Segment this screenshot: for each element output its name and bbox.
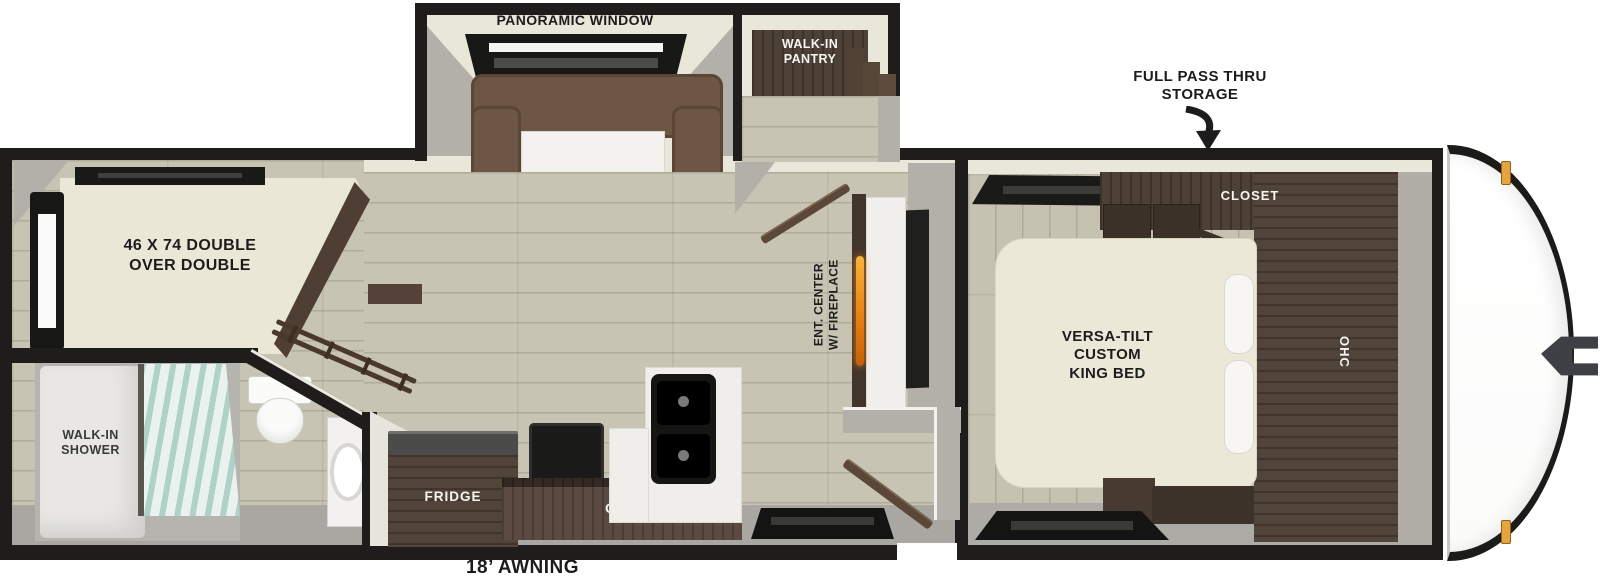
- panoramic-window-label: PANORAMIC WINDOW: [450, 12, 700, 29]
- bed-foot-bench: [1152, 486, 1254, 524]
- pantry-floor: [742, 96, 888, 162]
- bunkroom-side-window: [30, 192, 64, 350]
- ent-center-cabinet: [866, 197, 906, 423]
- storage-arrow-icon: [1178, 106, 1230, 154]
- window-slat-dark: [494, 58, 658, 69]
- panoramic-window: [465, 34, 687, 78]
- closet-label: CLOSET: [1198, 188, 1302, 204]
- pantry-label: WALK-IN PANTRY: [750, 37, 870, 68]
- king-bed-label: VERSA-TILT CUSTOM KING BED: [1015, 328, 1200, 383]
- walk-in-shower-label: WALK-IN SHOWER: [38, 428, 143, 459]
- washer-door: [330, 443, 366, 501]
- toilet-bowl: [256, 398, 304, 444]
- entry-step-wall-side: [934, 407, 960, 520]
- stove: [529, 423, 604, 482]
- faucet-knob: [678, 450, 689, 461]
- awning-label: 18’ AWNING: [440, 556, 605, 579]
- bedroom-bottom-window: [971, 511, 1169, 540]
- pantry-side-wall: [878, 96, 900, 162]
- fridge-top: [388, 431, 518, 458]
- fireplace-flame: [856, 256, 864, 366]
- bunk-bed-label: 46 X 74 DOUBLE OVER DOUBLE: [85, 236, 295, 275]
- pantry-step-3: [879, 74, 896, 96]
- bunkroom-top-window: [75, 167, 265, 185]
- pass-thru-storage-label: FULL PASS THRU STORAGE: [1095, 68, 1305, 105]
- fridge-label: FRIDGE: [388, 489, 518, 505]
- pillow: [1224, 360, 1254, 454]
- floorplan-canvas: PANORAMIC WINDOW WALK-IN PANTRY 46 X 74 …: [0, 0, 1600, 581]
- entry-door-opening: [897, 543, 957, 560]
- bunk-step: [368, 284, 422, 304]
- bathroom-wall-top: [6, 348, 258, 363]
- ent-center-label: ENT. CENTER W/ FIREPLACE: [811, 240, 840, 370]
- tv-panel: [903, 210, 929, 389]
- window-pane: [38, 214, 56, 328]
- sink-counter-arm: [609, 428, 649, 523]
- window-slat: [1011, 521, 1134, 529]
- double-sink: [651, 374, 716, 484]
- window-slat: [771, 517, 874, 525]
- entry-window: [751, 508, 894, 539]
- shower-glass-door: [140, 364, 240, 516]
- bedroom-storage-strip: [1394, 172, 1432, 545]
- window-slat-light: [489, 43, 662, 52]
- window-slat: [98, 173, 242, 178]
- faucet-knob: [678, 396, 689, 407]
- marker-light: [1501, 161, 1511, 185]
- bedroom-ohc-cabinet: [1254, 172, 1398, 542]
- pillow: [1224, 274, 1254, 354]
- marker-light: [1501, 520, 1511, 544]
- bedroom-ohc-label: OHC: [1336, 326, 1352, 378]
